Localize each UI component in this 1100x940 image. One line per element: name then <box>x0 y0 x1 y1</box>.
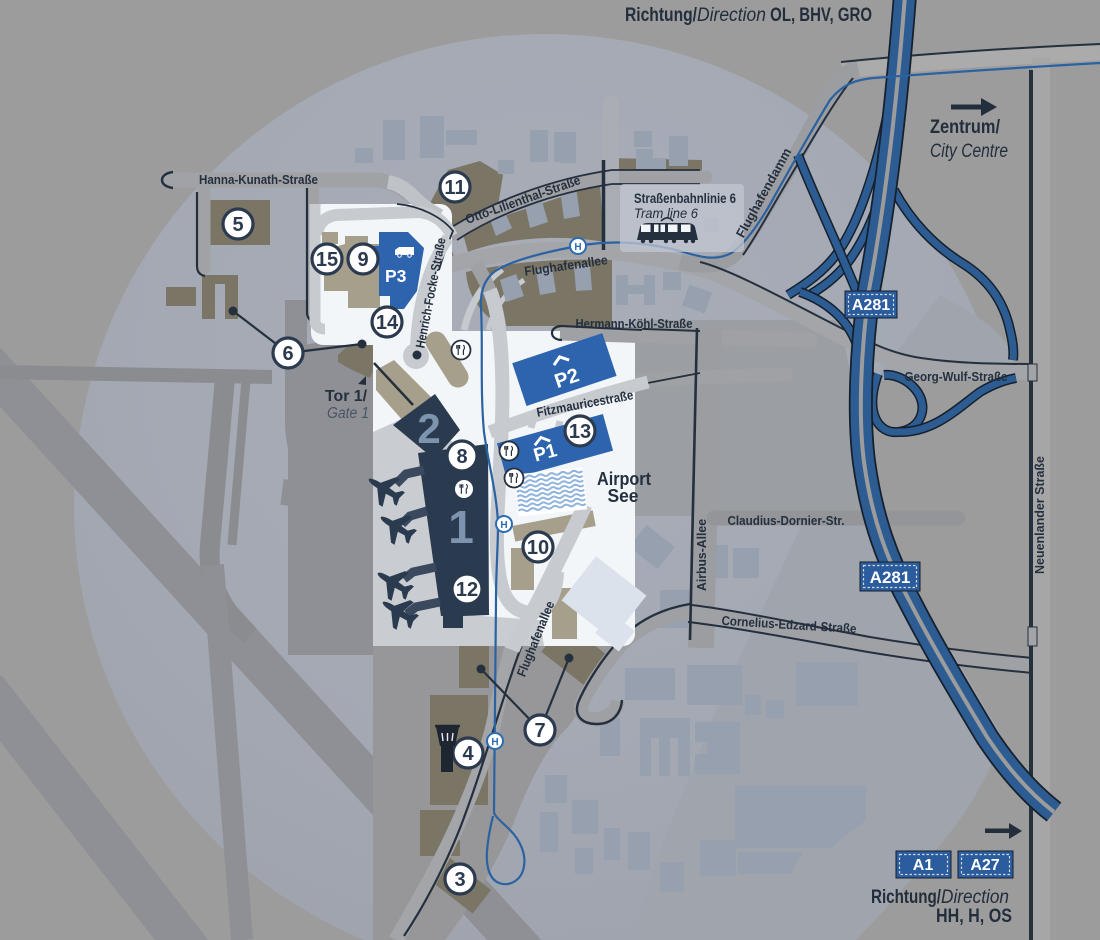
svg-text:1: 1 <box>448 501 474 553</box>
svg-text:A27: A27 <box>970 857 999 874</box>
svg-text:7: 7 <box>534 720 545 742</box>
svg-text:8: 8 <box>456 446 467 468</box>
svg-text:13: 13 <box>569 421 591 443</box>
svg-text:Georg-Wulf-Straße: Georg-Wulf-Straße <box>905 369 1008 384</box>
svg-text:Neuenlander Straße: Neuenlander Straße <box>1032 456 1047 574</box>
svg-text:Gate 1: Gate 1 <box>327 405 369 422</box>
svg-text:P3: P3 <box>385 266 407 286</box>
svg-text:Straßenbahnlinie 6: Straßenbahnlinie 6 <box>634 190 736 206</box>
svg-text:Airbus-Allee: Airbus-Allee <box>694 519 709 591</box>
svg-text:Zentrum/: Zentrum/ <box>930 116 1000 138</box>
svg-text:12: 12 <box>456 579 478 601</box>
svg-text:Richtung/Direction OL, BHV, GR: Richtung/Direction OL, BHV, GRO <box>625 4 872 26</box>
svg-text:Hermann-Köhl-Straße: Hermann-Köhl-Straße <box>576 316 693 331</box>
svg-text:HH, H, OS: HH, H, OS <box>936 905 1012 927</box>
svg-text:4: 4 <box>462 743 474 765</box>
svg-text:3: 3 <box>454 869 465 891</box>
svg-text:6: 6 <box>282 343 293 365</box>
svg-text:2: 2 <box>417 405 440 452</box>
svg-text:15: 15 <box>316 249 338 271</box>
svg-text:14: 14 <box>376 312 399 334</box>
svg-text:Claudius-Dornier-Str.: Claudius-Dornier-Str. <box>728 513 845 528</box>
svg-text:5: 5 <box>232 214 243 236</box>
svg-text:Hanna-Kunath-Straße: Hanna-Kunath-Straße <box>199 172 318 187</box>
svg-text:A281: A281 <box>852 297 890 314</box>
svg-text:See: See <box>608 486 639 506</box>
svg-text:9: 9 <box>357 249 368 271</box>
svg-text:10: 10 <box>527 537 549 559</box>
svg-text:H: H <box>491 737 498 748</box>
svg-text:H: H <box>500 520 507 531</box>
svg-text:Tram line 6: Tram line 6 <box>634 205 698 221</box>
svg-text:Tor 1/: Tor 1/ <box>325 388 368 405</box>
svg-text:11: 11 <box>444 177 465 199</box>
svg-text:A281: A281 <box>870 568 911 587</box>
svg-text:A1: A1 <box>913 857 934 874</box>
svg-text:H: H <box>574 242 581 253</box>
svg-text:City Centre: City Centre <box>930 140 1008 162</box>
